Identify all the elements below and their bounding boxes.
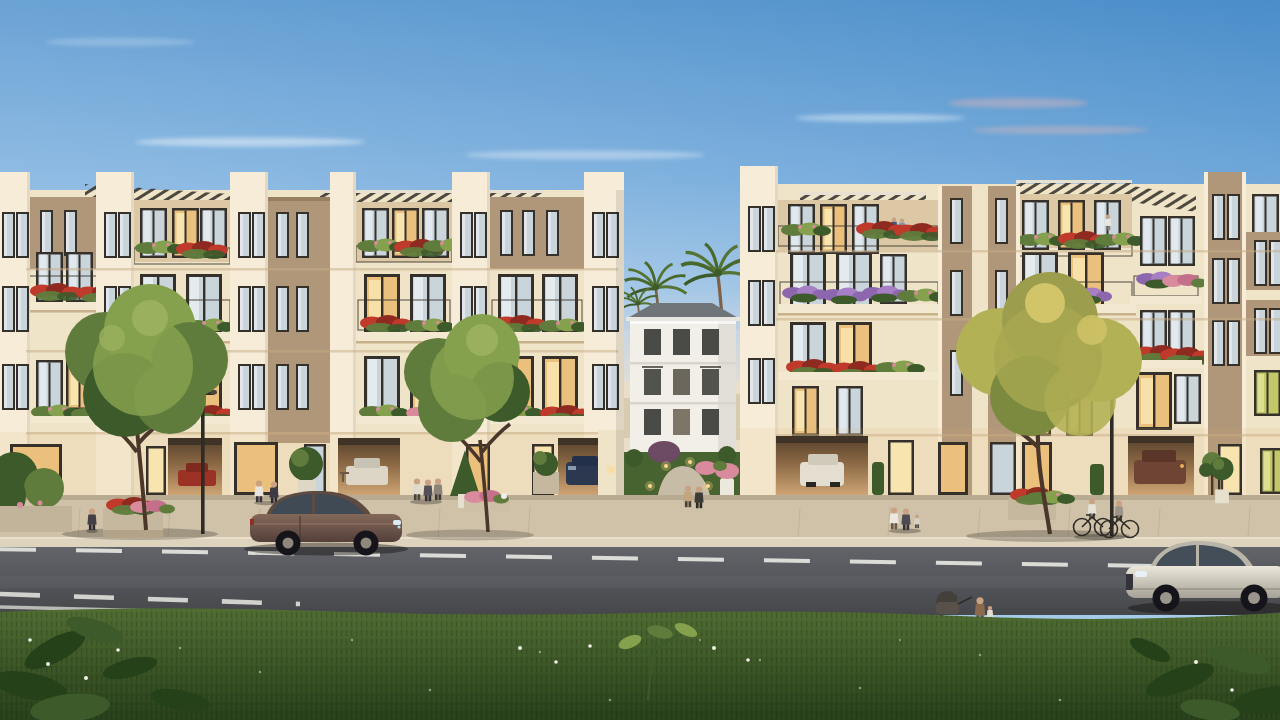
window bbox=[1260, 448, 1280, 494]
road bbox=[0, 547, 1280, 615]
window bbox=[364, 356, 400, 414]
hedge bbox=[1090, 464, 1104, 495]
garage-white-car-2 bbox=[776, 436, 868, 495]
window bbox=[1168, 216, 1195, 266]
hedge bbox=[872, 462, 884, 495]
window bbox=[1136, 372, 1172, 430]
roof-pergola bbox=[800, 192, 926, 196]
garage-brown-car bbox=[1128, 436, 1194, 495]
garden-light bbox=[703, 481, 713, 491]
architectural-rendering bbox=[0, 0, 1280, 720]
right-ground-floor bbox=[740, 428, 1280, 495]
tall-planter bbox=[533, 451, 559, 494]
lit-lobby bbox=[237, 445, 275, 492]
roof-pergola bbox=[1016, 180, 1132, 184]
lit-door bbox=[891, 443, 912, 493]
rendering-canvas bbox=[0, 0, 1280, 720]
lit-door bbox=[149, 449, 164, 493]
garden-light bbox=[685, 457, 695, 467]
foreground-lawn bbox=[0, 608, 1280, 720]
garden-light bbox=[661, 461, 671, 471]
villa-windows bbox=[642, 329, 721, 435]
garden-light bbox=[645, 481, 655, 491]
window bbox=[542, 356, 578, 414]
purple-shrub bbox=[648, 441, 680, 463]
window bbox=[1254, 370, 1280, 416]
garage-white-car bbox=[338, 438, 400, 495]
garage-red-car bbox=[168, 438, 222, 495]
window bbox=[1174, 374, 1201, 424]
window bbox=[1140, 216, 1167, 266]
window bbox=[36, 360, 63, 410]
